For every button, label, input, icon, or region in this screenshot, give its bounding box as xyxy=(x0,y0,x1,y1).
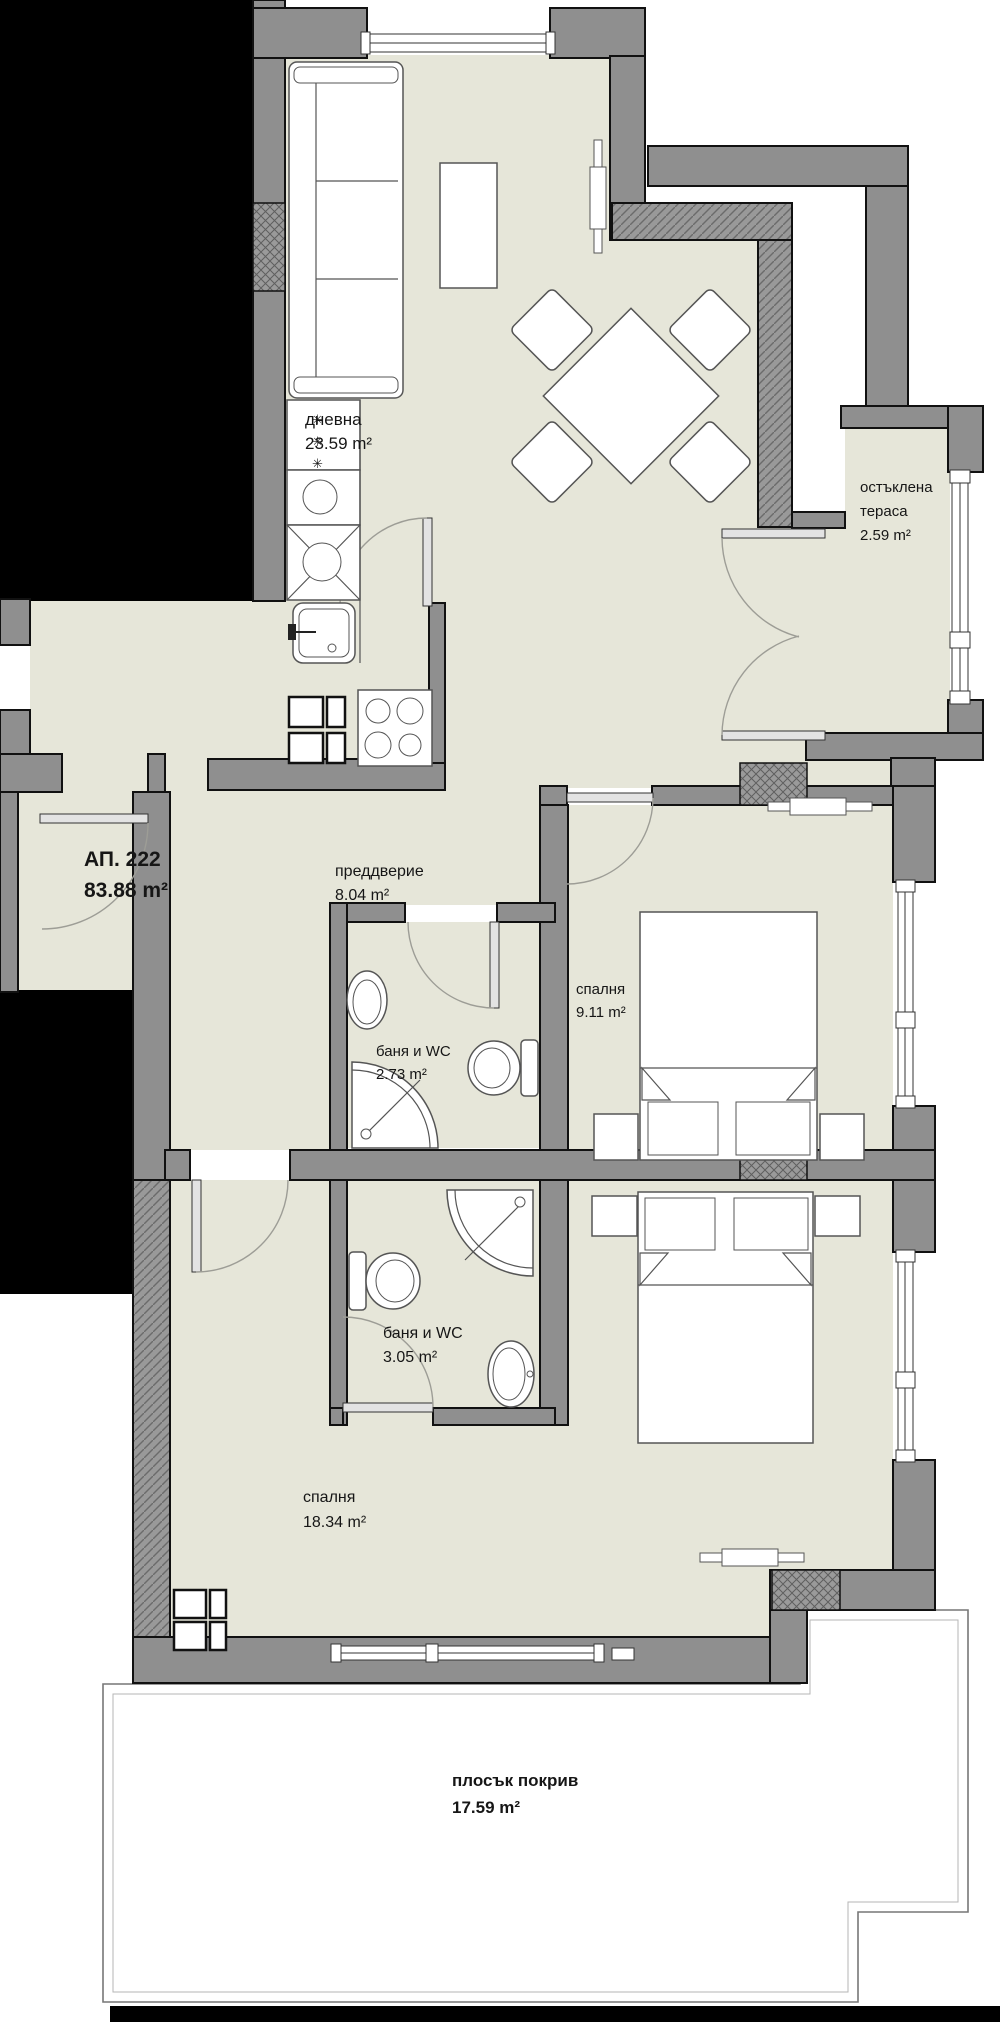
bottom-edge-bar xyxy=(110,2006,1000,2022)
living-room-area: 23.59 m² xyxy=(305,434,372,453)
roof-area: 17.59 m² xyxy=(452,1798,520,1817)
wall-entry-west-a xyxy=(0,599,30,645)
bathroom1-toilet xyxy=(468,1040,538,1096)
wall-bathroom2-east xyxy=(540,1180,568,1425)
wall-mid-south-a xyxy=(165,1150,190,1180)
wall-bathroom2-south-b xyxy=(433,1408,555,1425)
wall-bathroom1-north-b xyxy=(497,903,555,922)
freezer-icon: ✳ xyxy=(312,456,323,471)
bedroom1-label: спалня xyxy=(576,981,625,998)
terrace-label-line1: остъклена xyxy=(860,479,933,496)
window-bedroom2-south xyxy=(331,1644,634,1662)
wall-bathroom1-north-a xyxy=(347,903,405,922)
wall-outer-northeast-h xyxy=(648,146,908,186)
window-bedroom2-east xyxy=(896,1250,915,1462)
nightstand xyxy=(592,1196,637,1236)
bedroom2-bed xyxy=(638,1192,813,1443)
wall-hatched-east xyxy=(758,240,792,527)
neighbor-mask-top xyxy=(0,0,253,601)
bathroom2-sink xyxy=(488,1341,534,1407)
column-bedroom2-south xyxy=(772,1570,840,1610)
apartment-area: 83.88 m² xyxy=(84,879,168,902)
wall-bedroom1-east-top xyxy=(893,786,935,882)
wall-entry-west-thin xyxy=(0,792,18,992)
wall-outer-northeast-v xyxy=(866,186,908,428)
corridor-floor xyxy=(165,905,330,1150)
bathroom1-area: 2.73 m² xyxy=(376,1066,427,1083)
nightstand xyxy=(820,1114,864,1160)
bathroom2-area: 3.05 m² xyxy=(383,1349,438,1366)
wall-bathroom1-west xyxy=(330,903,347,1150)
terrace-area: 2.59 m² xyxy=(860,527,911,544)
wall-terrace-south xyxy=(806,733,983,760)
faucet-icon xyxy=(288,624,296,640)
kitchen-hob-round xyxy=(287,470,360,525)
wall-living-north-b xyxy=(550,8,645,58)
hallway-label: преддверие xyxy=(335,863,424,880)
wall-terrace-east-top xyxy=(948,406,983,472)
bathroom2-toilet xyxy=(349,1252,420,1310)
sofa xyxy=(289,62,403,398)
hallway-area: 8.04 m² xyxy=(335,887,390,904)
bathroom2-label: баня и WC xyxy=(383,1325,463,1342)
wall-entry-west-b xyxy=(0,710,30,759)
column-living-west xyxy=(253,203,285,291)
wall-bedroom2-south-jog xyxy=(770,1610,807,1683)
wall-entry-north-b xyxy=(148,754,165,792)
living-room-floor-nook xyxy=(758,527,845,765)
wall-hatched-north xyxy=(612,203,792,240)
apartment-number: АП. 222 xyxy=(84,848,161,871)
bedroom1-bed xyxy=(640,912,817,1160)
wall-bedroom2-east-top xyxy=(893,1180,935,1252)
wall-bedroom1-north-a xyxy=(540,786,567,805)
wall-bedroom1-west xyxy=(540,805,568,1150)
bathroom1-label: баня и WC xyxy=(376,1043,451,1060)
bedroom1-area: 9.11 m² xyxy=(576,1004,626,1021)
wall-entry-north-a xyxy=(0,754,62,792)
bedroom2-floor-south xyxy=(170,1570,770,1637)
coffee-table xyxy=(440,163,497,288)
wall-living-north-a xyxy=(253,8,367,58)
dining-set xyxy=(510,288,753,505)
stove xyxy=(358,690,432,766)
terrace-label-line2: тераса xyxy=(860,503,908,520)
neighbor-mask-left xyxy=(0,990,133,1294)
wall-bedroom2-east-bottom xyxy=(893,1460,935,1570)
bedroom2-label: спалня xyxy=(303,1489,355,1506)
bathroom1-sink xyxy=(347,971,387,1029)
bedroom2-area: 18.34 m² xyxy=(303,1514,367,1531)
washing-machine xyxy=(287,525,360,600)
wall-living-west xyxy=(253,0,285,601)
wall-bathroom2-west xyxy=(330,1180,347,1425)
window-terrace-east xyxy=(950,470,970,704)
floor-plan: ✳ ✳ ✳ xyxy=(0,0,1000,2022)
floor-plan-canvas: ✳ ✳ ✳ xyxy=(0,0,1000,2022)
roof-label: плосък покрив xyxy=(452,1771,578,1790)
nightstand xyxy=(815,1196,860,1236)
wall-terrace-west-stub xyxy=(792,512,845,528)
terrace-floor xyxy=(845,427,950,747)
wall-bathroom2-south-a xyxy=(330,1408,343,1425)
kitchen-sink xyxy=(288,603,355,663)
hall-strip-floor xyxy=(430,757,935,788)
nightstand xyxy=(594,1114,638,1160)
living-room-label: дневна xyxy=(305,410,362,429)
window-living-north xyxy=(361,32,555,54)
wall-bedroom2-west-hatched xyxy=(133,1180,170,1637)
window-bedroom1-east xyxy=(896,880,915,1108)
